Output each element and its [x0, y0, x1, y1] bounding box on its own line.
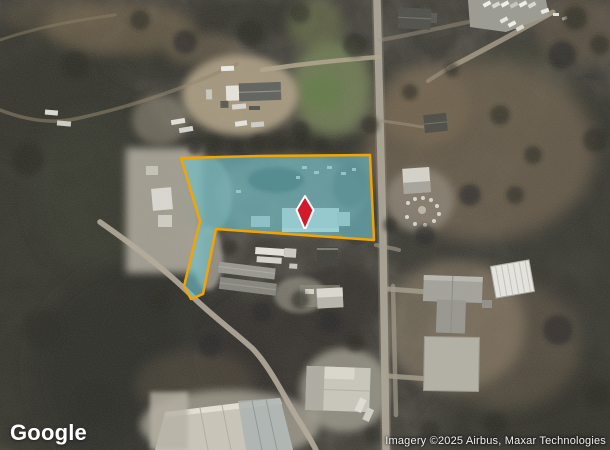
satellite-imagery [0, 0, 610, 450]
imagery-attribution: Imagery ©2025 Airbus, Maxar Technologies [385, 435, 606, 447]
google-logo[interactable]: Google [10, 420, 87, 446]
map-canvas[interactable]: Google Imagery ©2025 Airbus, Maxar Techn… [0, 0, 610, 450]
